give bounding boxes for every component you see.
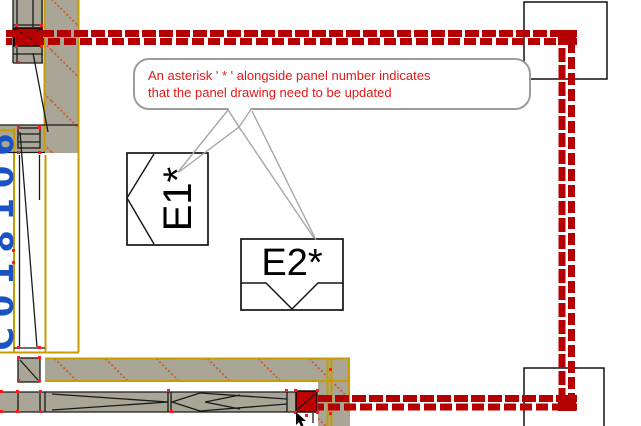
panel-label-e2[interactable]: E2* xyxy=(243,241,341,285)
callout-leaders xyxy=(0,0,641,426)
cad-viewport[interactable]: An asterisk ' * ' alongside panel number… xyxy=(0,0,641,426)
left-edge-vertical-label: C018106 xyxy=(0,112,20,362)
panel-label-e1[interactable]: E1* xyxy=(153,153,203,245)
